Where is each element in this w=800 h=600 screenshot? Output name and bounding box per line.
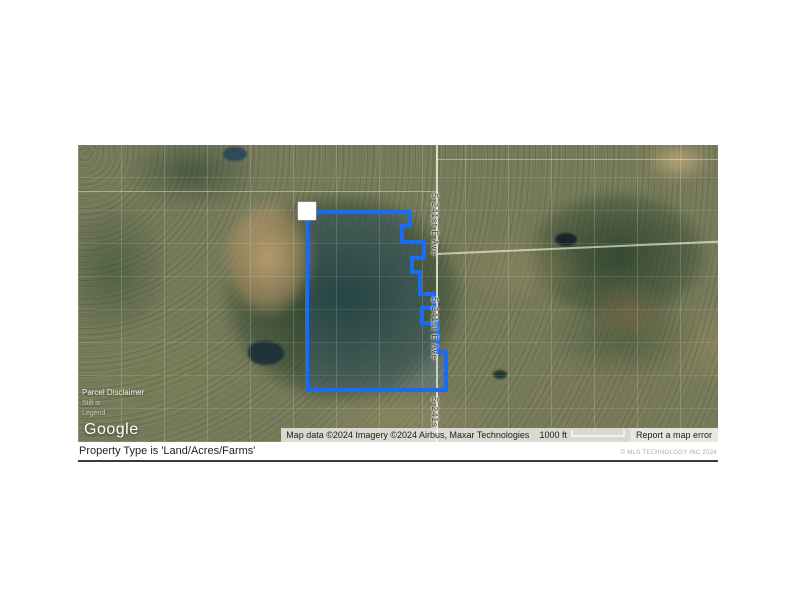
- mls-copyright: © MLS TECHNOLOGY INC 2024: [621, 450, 717, 456]
- page: S 241st E Ave S 241st E Ave S 241st E Av…: [0, 0, 800, 600]
- property-boundary-layer: [78, 145, 718, 442]
- report-map-error-link[interactable]: Report a map error: [630, 428, 718, 442]
- map-overlay-text: Still is: [82, 400, 100, 407]
- attribution-text: Map data ©2024 Imagery ©2024 Airbus, Max…: [281, 428, 534, 442]
- property-boundary-polygon[interactable]: [307, 212, 446, 390]
- filter-status-text: Property Type is 'Land/Acres/Farms': [79, 445, 255, 457]
- scale-bar: [571, 430, 625, 437]
- google-logo[interactable]: Google: [84, 421, 139, 439]
- map-scale-control: 1000 ft: [534, 428, 630, 442]
- map-attribution-bar: Map data ©2024 Imagery ©2024 Airbus, Max…: [281, 428, 718, 442]
- map-canvas[interactable]: S 241st E Ave S 241st E Ave S 241st E Av…: [78, 145, 718, 442]
- parcel-disclaimer-link[interactable]: Parcel Disclaimer: [82, 388, 144, 397]
- map-overlay-text: Legend: [82, 410, 105, 417]
- road-label: S 241st E Ave: [430, 193, 439, 256]
- road-label: S 241st E Ave: [430, 297, 439, 360]
- boundary-start-marker[interactable]: [298, 202, 316, 220]
- footer-bar: Property Type is 'Land/Acres/Farms' © ML…: [78, 442, 718, 462]
- scale-label: 1000 ft: [539, 428, 567, 442]
